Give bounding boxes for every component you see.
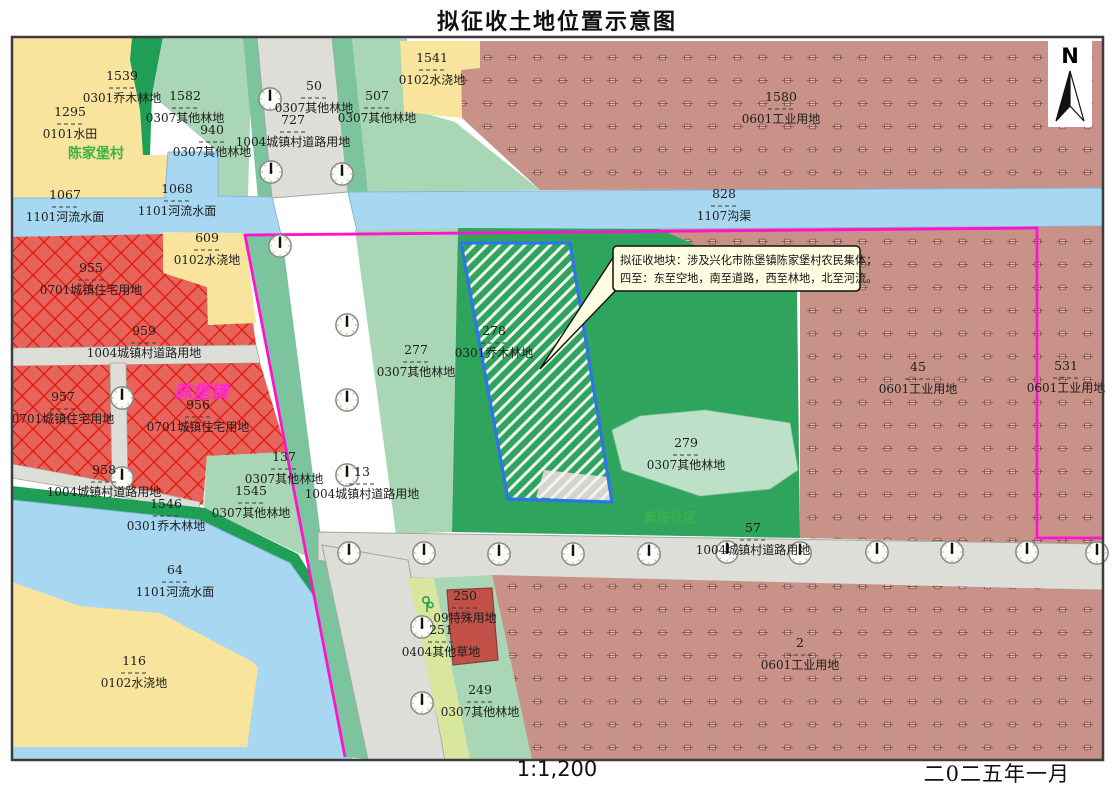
map-canvas: 15390301乔木林地12950101水田15820307其他林地940030… (0, 0, 1114, 792)
parcel-number: 279 (674, 435, 698, 450)
page-title: 拟征收土地位置示意图 (0, 4, 1114, 36)
parcel-landuse-type: 1101河流水面 (138, 204, 217, 218)
parcel-number: 1580 (765, 89, 797, 104)
parcel-number: 277 (404, 342, 428, 357)
streetlight-icon (562, 543, 584, 565)
parcel-number: 45 (910, 359, 926, 374)
parcel-landuse-type: 0307其他林地 (441, 705, 520, 719)
parcel-number: 1546 (150, 496, 182, 511)
parcel-landuse-type: 0404其他草地 (402, 645, 481, 659)
parcel-number: 1295 (54, 104, 86, 119)
parcel-number: 940 (200, 122, 224, 137)
parcel-number: 249 (468, 682, 492, 697)
place-name-陈家堡村: 陈家堡村 (68, 145, 124, 162)
parcel-number: 828 (712, 186, 736, 201)
parcel-number: 958 (92, 462, 116, 477)
parcel-number: 1067 (49, 187, 81, 202)
parcel-landuse-type: 0301乔木林地 (455, 346, 534, 360)
parcel-number: 50 (306, 78, 322, 93)
streetlight-icon (338, 542, 360, 564)
parcel-landuse-type: 0102水浇地 (399, 73, 466, 87)
parcel-number: 64 (167, 562, 183, 577)
parcel-number: 2 (796, 635, 804, 650)
parcel-landuse-type: 0307其他林地 (647, 458, 726, 472)
parcel-landuse-type: 0601工业用地 (761, 658, 840, 672)
parcel-number: 278 (482, 323, 506, 338)
date-label: 二0二五年一月 (924, 758, 1070, 788)
parcel-landuse-type: 0307其他林地 (338, 111, 417, 125)
parcel-number: 957 (51, 389, 75, 404)
parcel-number: 251 (429, 622, 453, 637)
parcel-landuse-type: 1004城镇村道路用地 (47, 484, 162, 499)
streetlight-icon (111, 387, 133, 409)
parcel-number: 250 (453, 588, 477, 603)
parcel-landuse-type: 0301乔木林地 (127, 519, 206, 533)
parcel-landuse-type: 1004城镇村道路用地 (696, 542, 811, 557)
parcel-number: 609 (195, 230, 219, 245)
parcel-number: 116 (122, 653, 146, 668)
parcel-landuse-type: 0701城镇住宅用地 (40, 282, 143, 297)
north-arrow-label: N (1061, 44, 1079, 68)
parcel-number: 1539 (106, 68, 138, 83)
north-arrow: N (1048, 40, 1092, 127)
place-name-新陈社区: 新陈社区 (644, 510, 696, 526)
parcel-landuse-type: 1004城镇村道路用地 (87, 345, 202, 360)
parcel-landuse-type: 0307其他林地 (377, 365, 456, 379)
parcel-landuse-type: 1101河流水面 (26, 210, 105, 224)
parcel-number: 531 (1054, 358, 1078, 373)
parcel-landuse-type: 1004城镇村道路用地 (236, 134, 351, 149)
parcel-number: 1582 (169, 88, 201, 103)
parcel-number: 13 (354, 464, 370, 479)
streetlight-icon (269, 235, 291, 257)
streetlight-icon (260, 161, 282, 183)
streetlight-icon (638, 543, 660, 565)
parcel-number: 1545 (235, 483, 267, 498)
parcel-number: 1541 (416, 50, 448, 65)
parcel-landuse-type: 0701城镇住宅用地 (12, 411, 115, 426)
streetlight-icon (331, 163, 353, 185)
streetlight-icon (336, 314, 358, 336)
parcel-number: 959 (132, 323, 156, 338)
parcel-number: 57 (745, 520, 761, 535)
map-document: 15390301乔木林地12950101水田15820307其他林地940030… (0, 0, 1114, 792)
callout-line2: 四至：东至空地，南至道路，西至林地，北至河流。 (620, 271, 877, 285)
parcel-number: 727 (281, 112, 305, 127)
callout-line1: 拟征收地块：涉及兴化市陈堡镇陈家堡村农民集体； (620, 253, 877, 267)
streetlight-icon (336, 389, 358, 411)
parcel-number: 507 (365, 88, 389, 103)
parcel-landuse-type: 1004城镇村道路用地 (305, 486, 420, 501)
parcel-landuse-type: 0307其他林地 (212, 506, 291, 520)
streetlight-icon (1016, 541, 1038, 563)
streetlight-icon (413, 542, 435, 564)
parcel-landuse-type: 0101水田 (43, 127, 98, 141)
parcel-landuse-type: 0102水浇地 (101, 676, 168, 690)
parcel-landuse-type: 1101河流水面 (136, 585, 215, 599)
place-name-陈堡镇: 陈堡镇 (174, 382, 231, 403)
parcel-landuse-type: 0601工业用地 (879, 382, 958, 396)
streetlight-icon (941, 541, 963, 563)
parcel-landuse-type: 0102水浇地 (174, 253, 241, 267)
parcel-landuse-type: 0701城镇住宅用地 (147, 419, 250, 434)
parcel-landuse-type: 1107沟渠 (697, 209, 752, 223)
parcel-landuse-type: 0301乔木林地 (83, 91, 162, 105)
streetlight-icon (866, 541, 888, 563)
parcel-number: 955 (79, 260, 103, 275)
streetlight-icon (488, 543, 510, 565)
parcel-number: 137 (272, 449, 296, 464)
streetlight-icon (1086, 542, 1108, 564)
parcel-landuse-type: 0601工业用地 (1027, 381, 1106, 395)
parcel-landuse-type: 0601工业用地 (742, 112, 821, 126)
parcel-number: 1068 (161, 181, 193, 196)
streetlight-icon (411, 692, 433, 714)
